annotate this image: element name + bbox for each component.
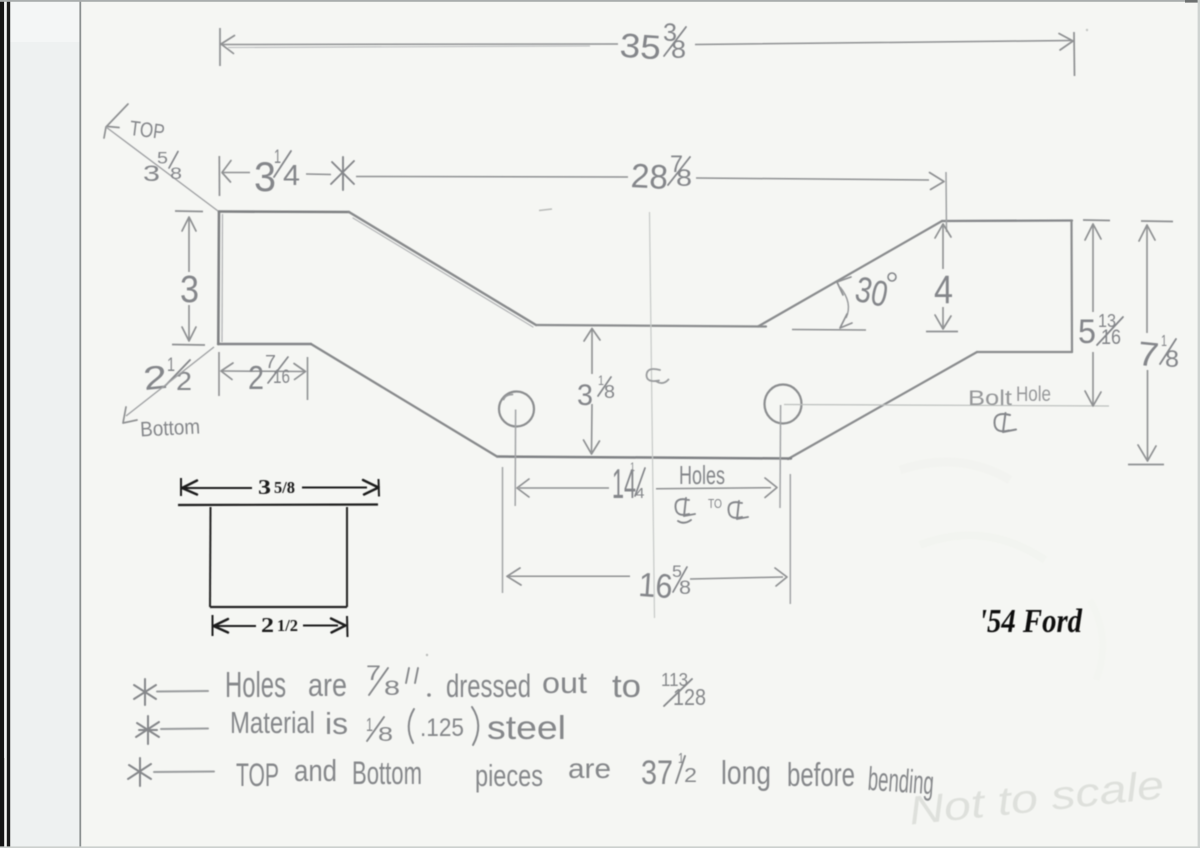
svg-text:Bolt: Bolt <box>968 387 1012 410</box>
svg-text:are: are <box>568 753 611 784</box>
svg-text:8: 8 <box>384 677 400 700</box>
svg-text:1: 1 <box>630 460 635 474</box>
svg-text:Material: Material <box>230 705 315 740</box>
svg-text:4: 4 <box>934 268 953 312</box>
svg-text:16: 16 <box>273 367 290 388</box>
svg-text:TOP: TOP <box>128 117 166 144</box>
svg-text:'54 Ford: '54 Ford <box>979 603 1083 640</box>
svg-text:long: long <box>721 754 771 791</box>
svg-text:8: 8 <box>378 724 393 746</box>
svg-text:2: 2 <box>248 359 264 396</box>
svg-text:2: 2 <box>684 765 697 787</box>
svg-text:8: 8 <box>676 165 692 192</box>
svg-text:is: is <box>325 706 348 741</box>
svg-text:16: 16 <box>637 566 674 606</box>
svg-text:are: are <box>308 667 347 703</box>
svg-text:1: 1 <box>167 355 175 376</box>
svg-text:.125: .125 <box>420 714 464 742</box>
svg-text:and: and <box>294 753 337 788</box>
svg-text:Holes: Holes <box>679 460 725 490</box>
svg-text:3: 3 <box>258 475 271 499</box>
svg-text:TO: TO <box>708 496 722 511</box>
svg-text:1: 1 <box>274 147 281 168</box>
svg-text:5: 5 <box>1078 313 1096 351</box>
svg-text:3: 3 <box>180 269 199 311</box>
svg-text:steel: steel <box>487 709 566 746</box>
svg-text:8: 8 <box>1165 346 1179 373</box>
svg-text:2: 2 <box>261 613 274 637</box>
svg-text:pieces: pieces <box>475 758 543 793</box>
svg-text:TOP: TOP <box>236 757 279 793</box>
svg-text:to: to <box>612 668 641 704</box>
svg-text:35: 35 <box>619 27 663 68</box>
svg-text:Bottom: Bottom <box>352 755 422 791</box>
svg-text:1/2: 1/2 <box>277 616 298 635</box>
svg-text:28: 28 <box>630 157 669 197</box>
svg-text:37: 37 <box>641 754 673 792</box>
svg-text:Hole: Hole <box>1016 383 1051 406</box>
svg-text:8: 8 <box>170 164 182 183</box>
svg-text:3: 3 <box>254 153 276 200</box>
svg-text:8: 8 <box>671 36 686 64</box>
svg-text:2: 2 <box>141 358 169 397</box>
svg-text:before: before <box>787 756 855 793</box>
svg-text:dressed: dressed <box>446 668 531 704</box>
svg-text:out: out <box>542 667 588 700</box>
svg-text:5: 5 <box>157 149 168 168</box>
svg-text:4: 4 <box>636 485 645 502</box>
svg-text:128: 128 <box>673 684 706 710</box>
svg-text:5/8: 5/8 <box>274 478 295 497</box>
svg-text:Holes: Holes <box>225 664 286 705</box>
svg-text:Bottom: Bottom <box>140 415 201 441</box>
svg-text:4: 4 <box>283 160 300 192</box>
svg-text:7: 7 <box>1136 335 1161 375</box>
svg-text:3: 3 <box>577 379 593 412</box>
svg-text:1: 1 <box>366 715 373 735</box>
svg-text:8: 8 <box>679 578 691 599</box>
